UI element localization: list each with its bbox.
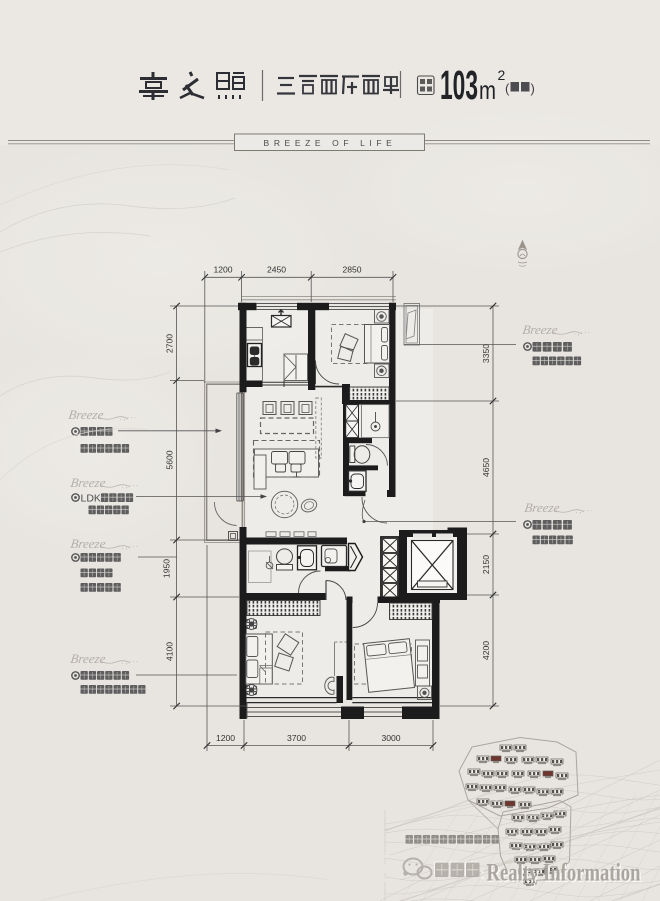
svg-text:3350: 3350 xyxy=(481,344,491,363)
svg-text:. , · · ·: . , · · · xyxy=(122,658,138,666)
svg-text:Breeze: Breeze xyxy=(522,322,559,337)
svg-text:3700: 3700 xyxy=(287,733,306,743)
svg-text:2150: 2150 xyxy=(481,555,491,574)
svg-text:(: ( xyxy=(505,81,510,96)
svg-text:LDK: LDK xyxy=(81,493,101,505)
svg-text:4200: 4200 xyxy=(481,641,491,660)
svg-text:2700: 2700 xyxy=(165,334,175,353)
svg-text:. , · · ·: . , · · · xyxy=(576,507,592,515)
svg-text:): ) xyxy=(531,81,535,96)
svg-text:2450: 2450 xyxy=(267,265,286,275)
svg-text:Breeze: Breeze xyxy=(70,536,107,551)
svg-text:4100: 4100 xyxy=(165,642,175,661)
svg-text:. , · · ·: . , · · · xyxy=(120,414,136,422)
svg-text:Breeze: Breeze xyxy=(70,475,107,490)
svg-text:Breeze: Breeze xyxy=(68,407,105,422)
svg-text:. , · · ·: . , · · · xyxy=(122,543,138,551)
svg-text:4650: 4650 xyxy=(481,458,491,477)
svg-text:5600: 5600 xyxy=(165,450,175,469)
svg-text:1950: 1950 xyxy=(162,559,172,578)
svg-text:Breeze: Breeze xyxy=(524,500,561,515)
svg-text:BREEZE OF LIFE: BREEZE OF LIFE xyxy=(264,138,397,148)
svg-text:m: m xyxy=(479,75,496,105)
svg-text:2850: 2850 xyxy=(342,265,361,275)
svg-text:. , · · ·: . , · · · xyxy=(574,329,590,337)
svg-text:. , · · ·: . , · · · xyxy=(122,482,138,490)
svg-text:Breeze: Breeze xyxy=(70,651,107,666)
svg-text:3000: 3000 xyxy=(381,733,400,743)
svg-text:1200: 1200 xyxy=(213,265,232,275)
svg-text::: : xyxy=(480,866,485,883)
svg-text:103: 103 xyxy=(440,62,478,108)
svg-text:1200: 1200 xyxy=(216,733,235,743)
svg-text:Realty Information: Realty Information xyxy=(487,860,641,887)
